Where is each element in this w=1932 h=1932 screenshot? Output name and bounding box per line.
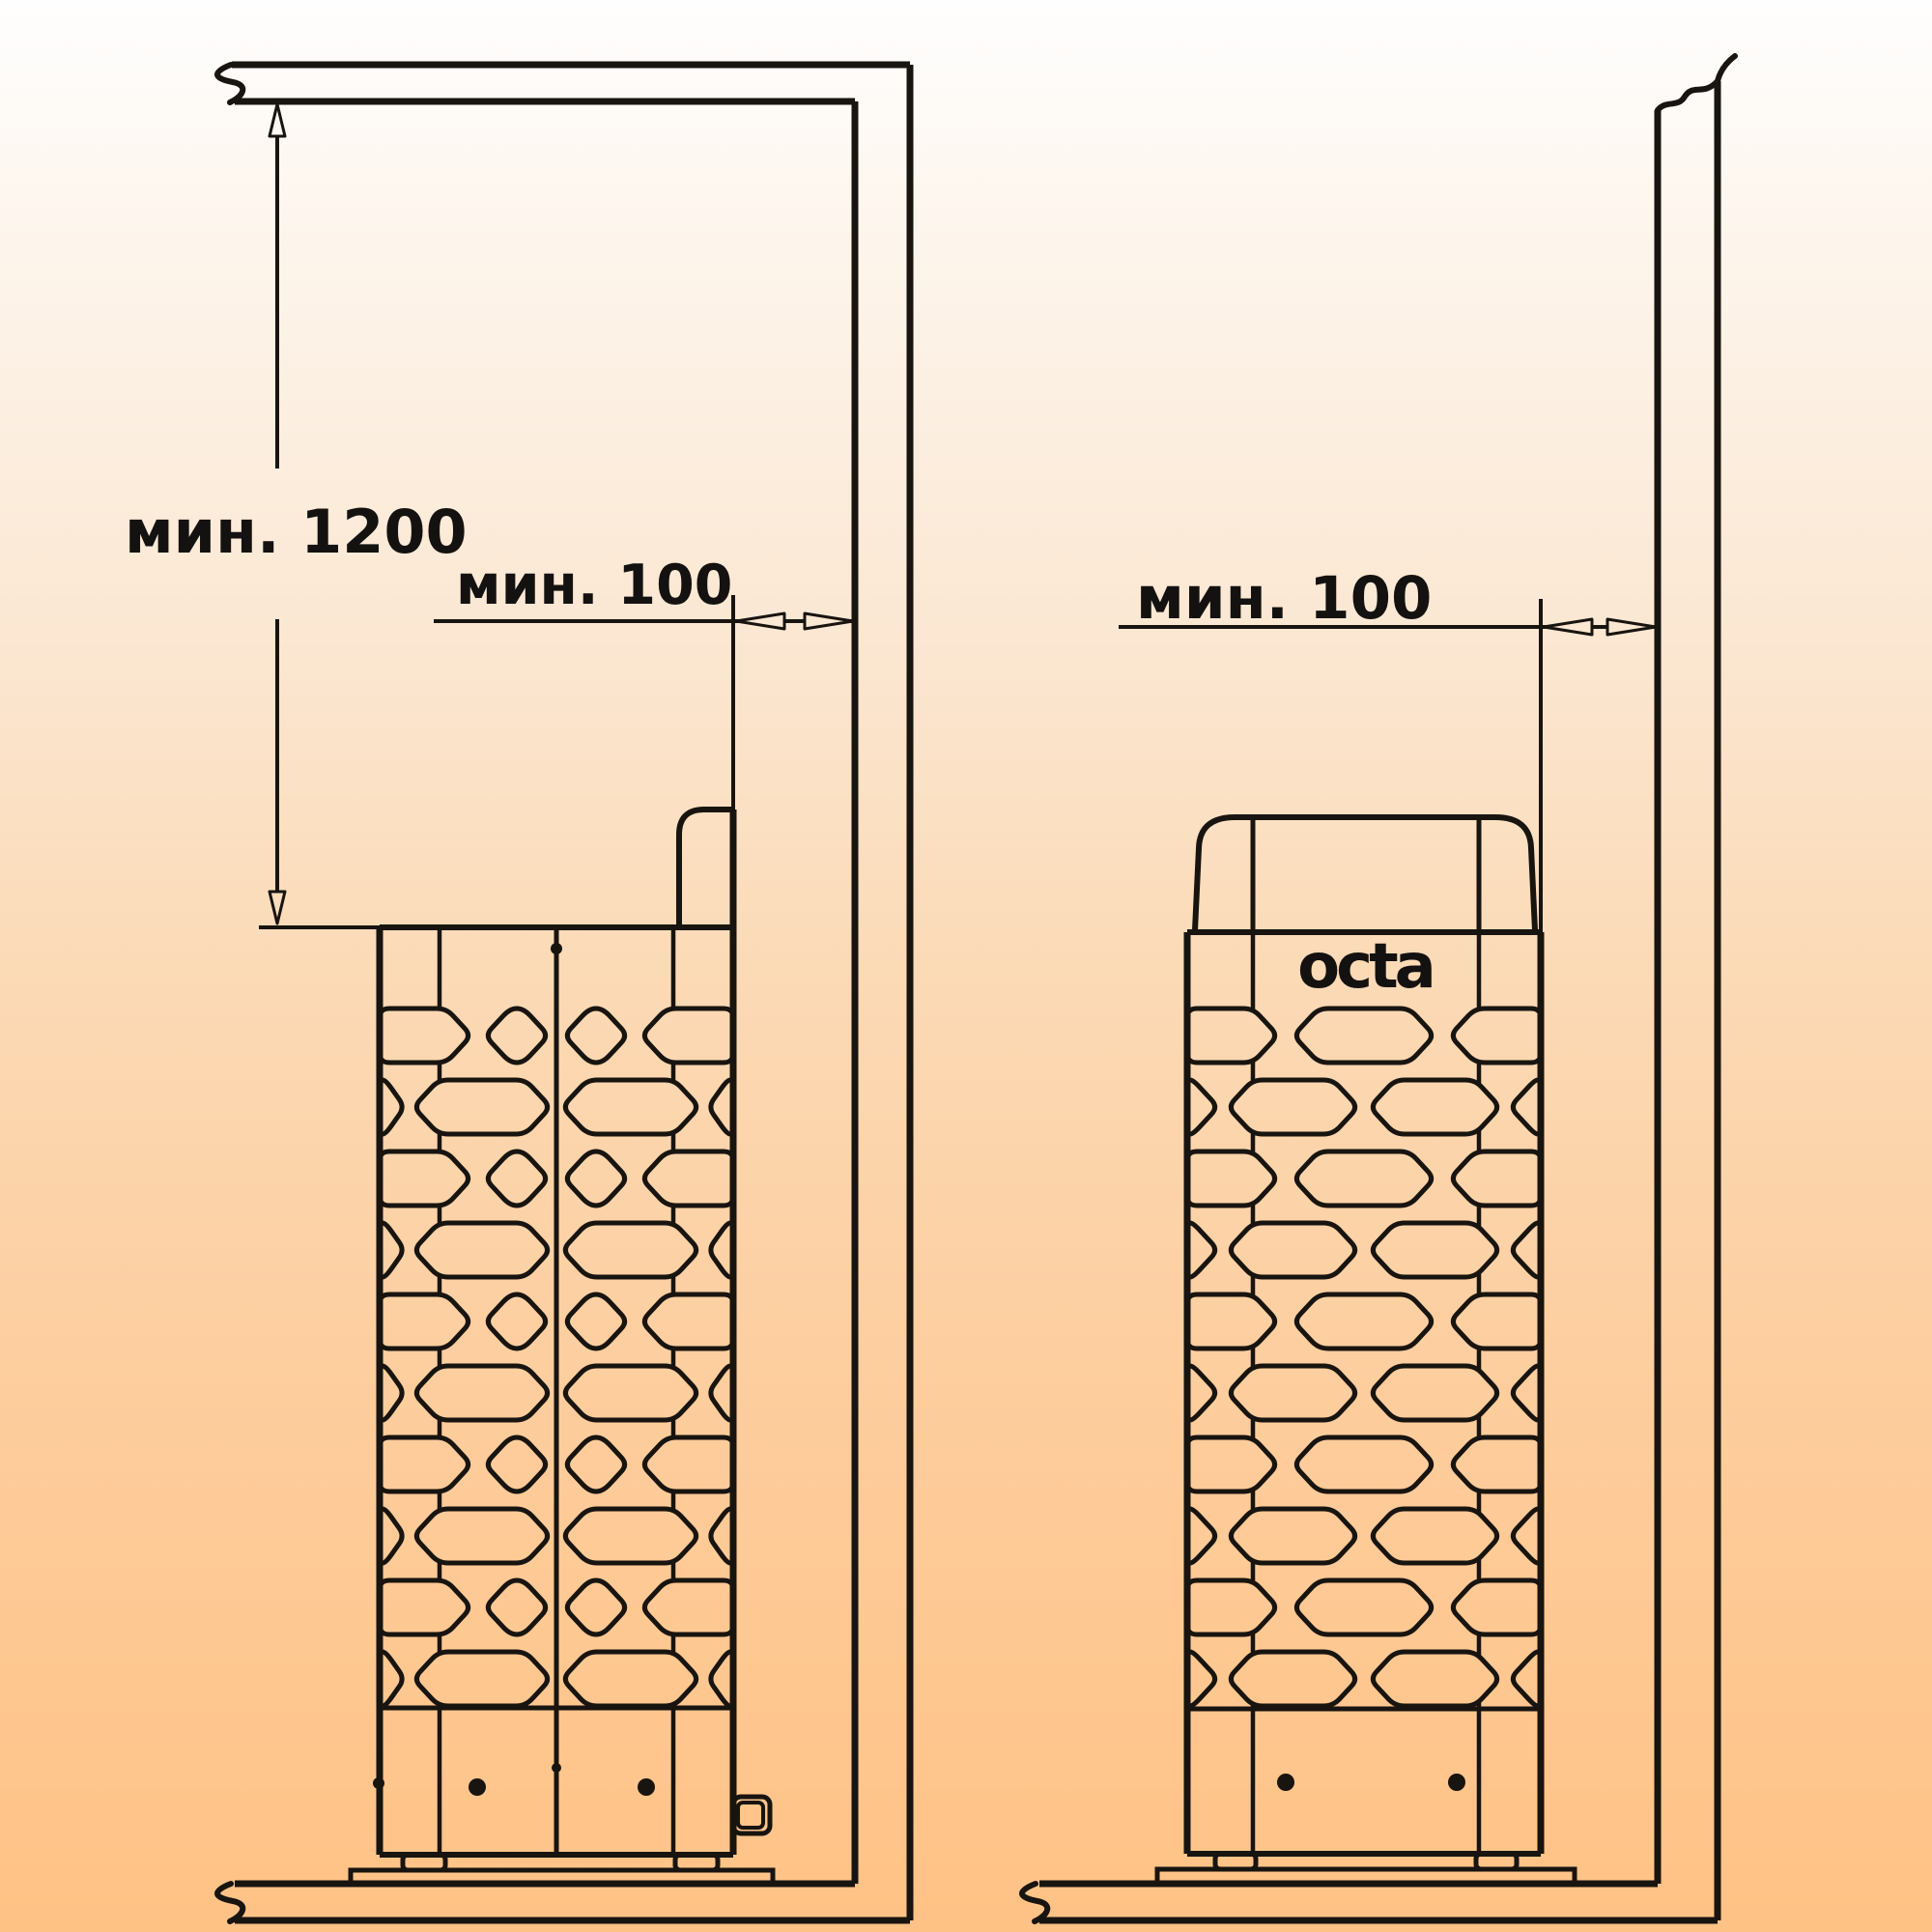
heater-stone	[416, 1223, 547, 1277]
heater-stone	[1453, 1580, 1541, 1634]
heater-stone	[1453, 1009, 1541, 1063]
heater-stone	[380, 1580, 469, 1634]
heater-stone	[565, 1080, 696, 1134]
heater-stone	[1231, 1080, 1354, 1134]
heater-stone	[1187, 1437, 1275, 1492]
heater-brand-logo: octa	[1297, 931, 1433, 1003]
heater-stone	[1373, 1366, 1496, 1420]
heater-stone	[565, 1652, 696, 1706]
side-screw-dot	[373, 1777, 384, 1789]
heater-stone	[1453, 1437, 1541, 1492]
heater-stone	[380, 1151, 469, 1206]
heater-stone	[1296, 1009, 1431, 1063]
heater-stone	[644, 1580, 733, 1634]
heater-stone	[644, 1294, 733, 1349]
heater-stone	[1231, 1366, 1354, 1420]
heater-stone	[1453, 1151, 1541, 1206]
heater-stone	[380, 1437, 469, 1492]
base-marker-dot	[552, 1763, 561, 1773]
base-screw-dot	[1277, 1774, 1294, 1791]
min-gap-left-label: мин. 100	[456, 554, 732, 617]
heater-stone	[1231, 1652, 1354, 1706]
heater-stone	[565, 1509, 696, 1563]
min-gap-right-label: мин. 100	[1136, 564, 1433, 633]
min-height-label: мин. 1200	[125, 497, 468, 567]
center-marker-dot	[551, 943, 562, 954]
heater-stone	[1453, 1294, 1541, 1349]
heater-stone	[565, 1223, 696, 1277]
heater-stone	[1373, 1223, 1496, 1277]
base-screw-dot	[1448, 1774, 1465, 1791]
heater-stone	[1296, 1294, 1431, 1349]
heater-stone	[380, 1294, 469, 1349]
heater-stone	[644, 1151, 733, 1206]
heater-stone	[1296, 1580, 1431, 1634]
heater-stone	[380, 1009, 469, 1063]
heater-stone	[1373, 1652, 1496, 1706]
base-screw-dot	[469, 1778, 486, 1796]
heater-stone	[1373, 1080, 1496, 1134]
heater-stone	[565, 1366, 696, 1420]
heater-stone	[644, 1009, 733, 1063]
heater-stone	[1187, 1009, 1275, 1063]
heater-stone	[416, 1080, 547, 1134]
heater-stone	[1296, 1151, 1431, 1206]
heater-stone	[1187, 1294, 1275, 1349]
heater-stone	[1231, 1223, 1354, 1277]
heater-stone	[416, 1652, 547, 1706]
base-screw-dot	[638, 1778, 655, 1796]
installation-clearance-diagram: мин. 1200 мин. 100	[0, 0, 1932, 1932]
background	[0, 0, 1932, 1932]
heater-stone	[416, 1366, 547, 1420]
heater-stone	[644, 1437, 733, 1492]
heater-stone	[1373, 1509, 1496, 1563]
heater-stone	[1187, 1151, 1275, 1206]
heater-stone	[1296, 1437, 1431, 1492]
heater-stone	[1187, 1580, 1275, 1634]
heater-stone	[416, 1509, 547, 1563]
heater-stone	[1231, 1509, 1354, 1563]
